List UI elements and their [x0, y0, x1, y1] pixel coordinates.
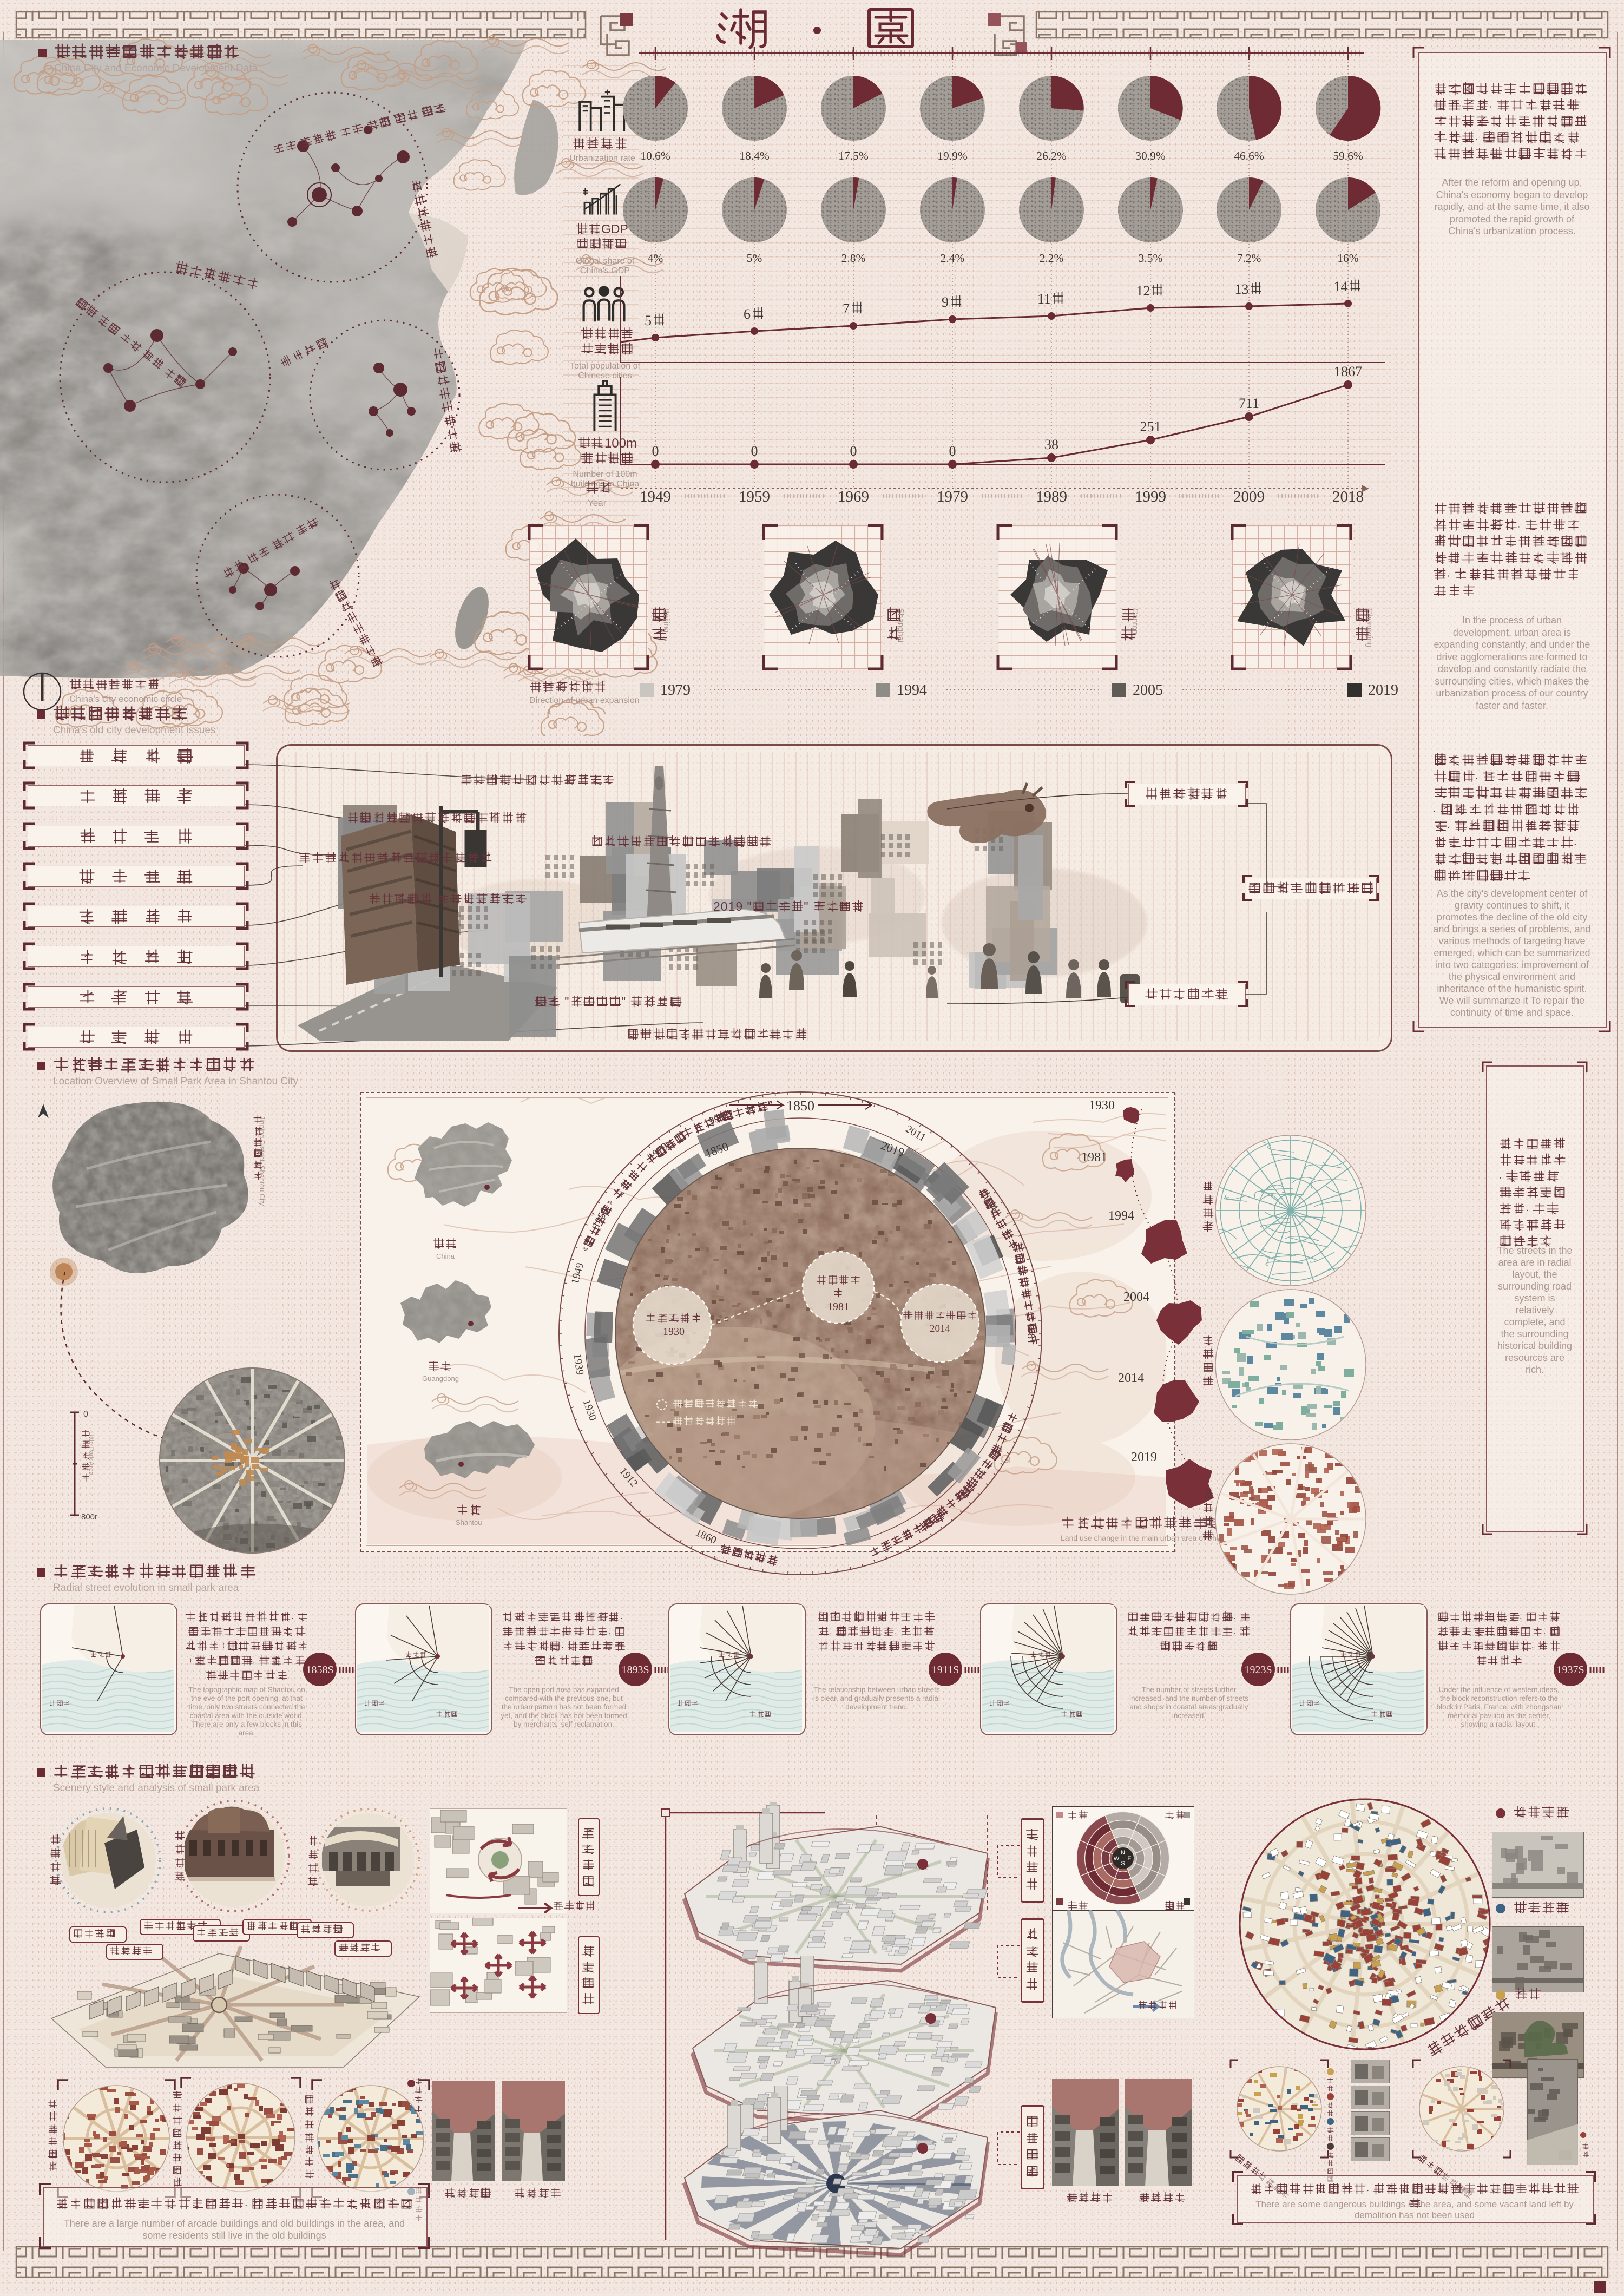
svg-text:2014: 2014: [1118, 1371, 1144, 1385]
svg-text:1994: 1994: [1108, 1209, 1134, 1223]
svg-text:1893S: 1893S: [621, 1664, 649, 1676]
svg-text:1994: 1994: [897, 682, 927, 699]
svg-text:1923S: 1923S: [1244, 1664, 1272, 1676]
svg-text:800m: 800m: [81, 1512, 97, 1522]
svg-text:0: 0: [83, 1410, 88, 1419]
svg-text:1937S: 1937S: [1556, 1664, 1584, 1676]
svg-text:1850: 1850: [786, 1098, 814, 1114]
svg-text:1949: 1949: [569, 1261, 586, 1285]
svg-text:E: E: [1127, 1856, 1131, 1862]
svg-text:S: S: [1121, 1860, 1125, 1867]
svg-text:2019: 2019: [1368, 682, 1398, 699]
svg-text:2004: 2004: [1123, 1290, 1149, 1304]
svg-text:N: N: [1121, 1850, 1125, 1856]
svg-text:1939: 1939: [571, 1353, 586, 1376]
svg-text:1979: 1979: [660, 682, 691, 699]
svg-text:2005: 2005: [1133, 682, 1163, 699]
svg-text:1981: 1981: [1081, 1150, 1107, 1165]
svg-text:1860: 1860: [694, 1527, 719, 1547]
svg-text:1930: 1930: [1089, 1098, 1115, 1113]
svg-text:2019: 2019: [1131, 1450, 1157, 1464]
svg-text:W: W: [1114, 1856, 1120, 1862]
svg-text:1858S: 1858S: [306, 1664, 333, 1676]
svg-text:1911S: 1911S: [932, 1664, 959, 1676]
